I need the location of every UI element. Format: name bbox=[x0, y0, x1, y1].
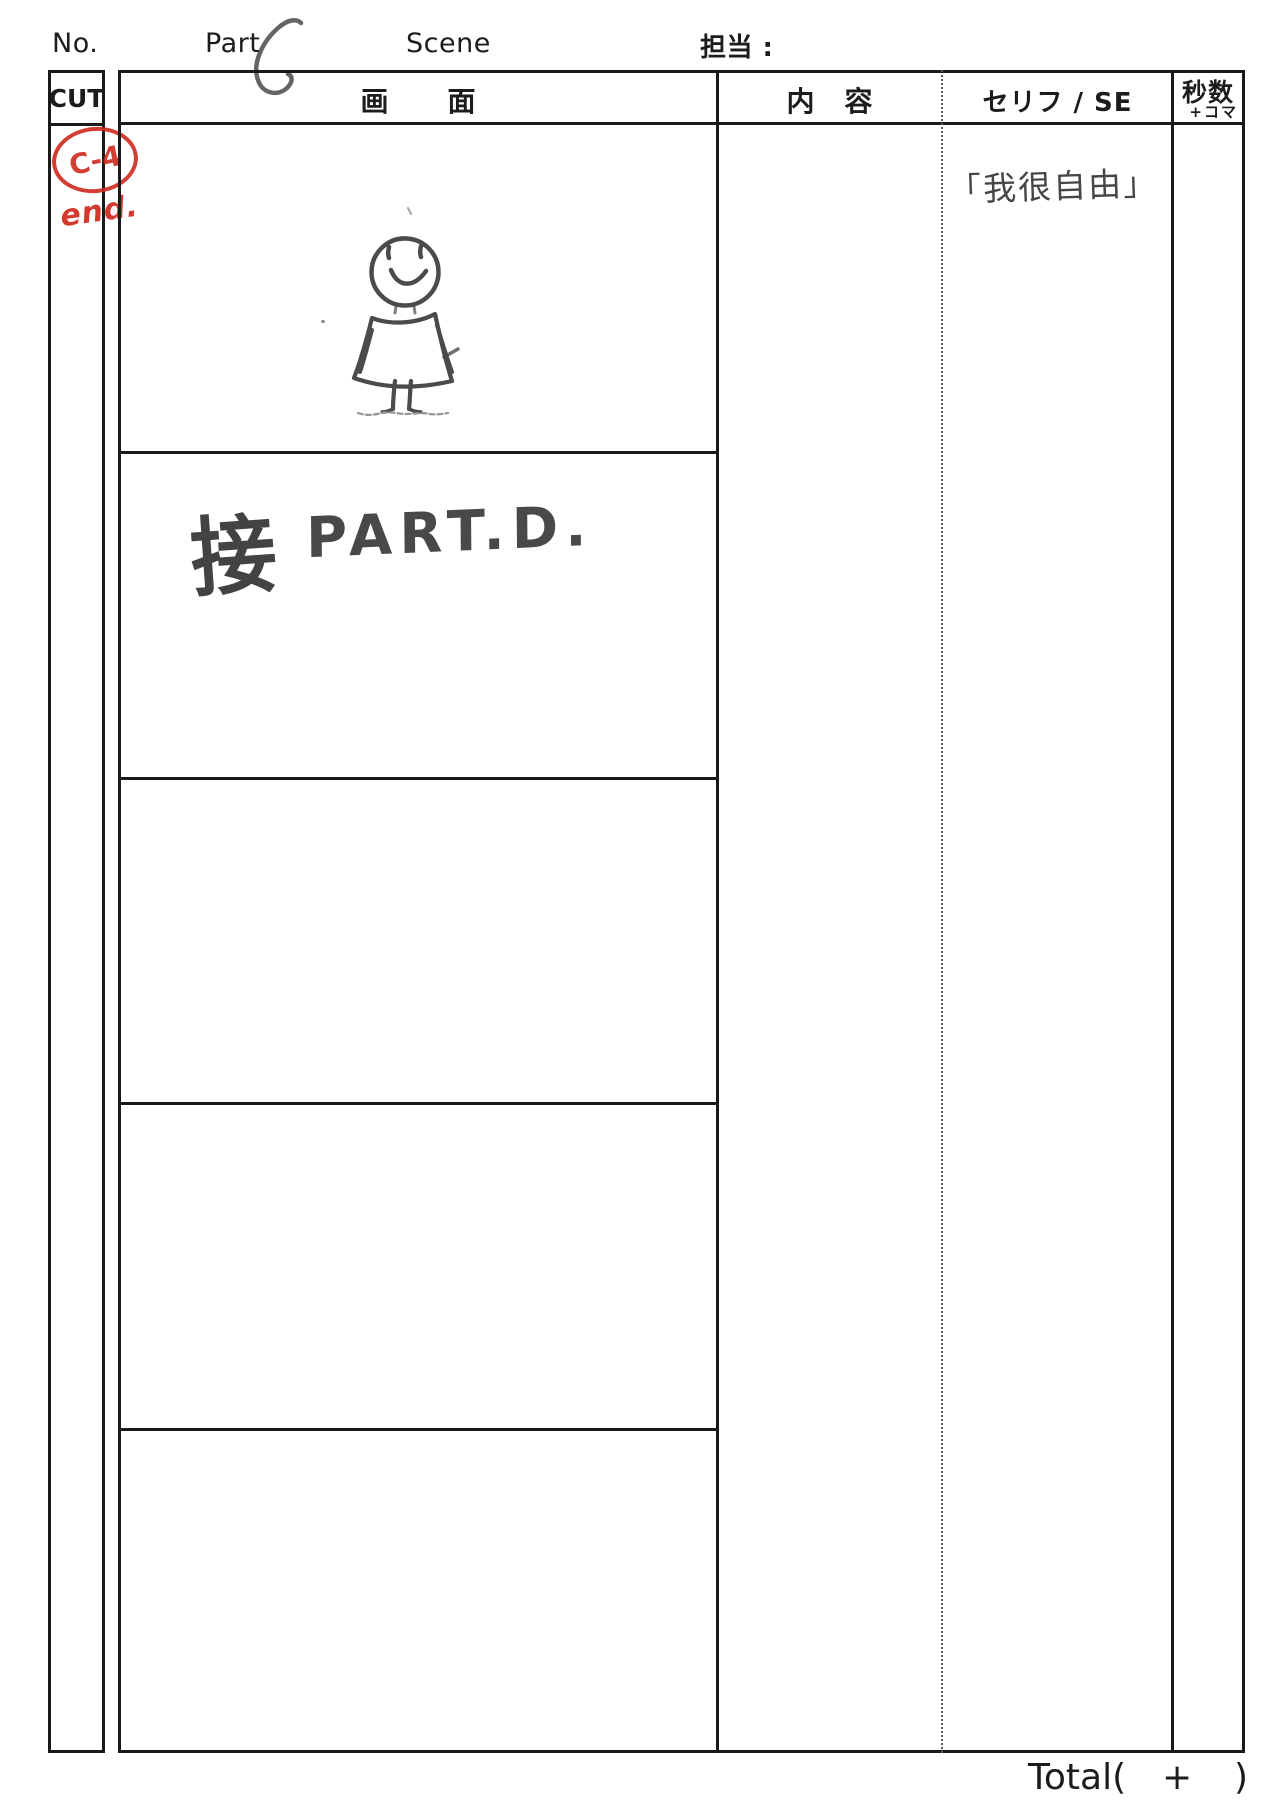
cut-column-header-cell: CUT bbox=[48, 70, 105, 126]
panel-divider bbox=[121, 1102, 716, 1105]
cut-column-body bbox=[48, 126, 105, 1753]
no-label: No. bbox=[52, 28, 98, 59]
cut-column-header-label: CUT bbox=[49, 84, 105, 113]
screen-content-divider bbox=[716, 70, 719, 1753]
panel-divider bbox=[121, 451, 716, 454]
total-label: Total( bbox=[1028, 1757, 1126, 1798]
cut-number-handwritten: C-4 bbox=[66, 138, 124, 181]
dialogue-column-header: セリフ / SE bbox=[944, 82, 1171, 119]
link-target-handwritten: PART.D. bbox=[306, 494, 594, 572]
assignee-label: 担当 : bbox=[700, 27, 773, 64]
content-dialogue-dotted-divider bbox=[941, 70, 943, 1753]
dialogue-handwritten: 「我很自由」 bbox=[947, 156, 1159, 211]
total-plus-sign: + bbox=[1162, 1757, 1192, 1798]
screen-column-header: 画 面 bbox=[121, 80, 716, 120]
link-kanji-handwritten: 接 bbox=[186, 483, 281, 614]
dialogue-seconds-divider bbox=[1171, 70, 1174, 1753]
seconds-column-subheader: +コマ bbox=[1172, 101, 1238, 122]
scene-label: Scene bbox=[406, 28, 491, 59]
panel-divider bbox=[121, 1428, 716, 1431]
storyboard-page: { "header": { "no_label": "No.", "part_l… bbox=[0, 0, 1280, 1811]
total-close-paren: ) bbox=[1234, 1757, 1248, 1798]
stick-figure-sketch-icon bbox=[316, 202, 461, 420]
content-column-header: 内 容 bbox=[719, 80, 941, 120]
panel-divider bbox=[121, 777, 716, 780]
storyboard-table bbox=[118, 70, 1245, 1753]
header-row-divider bbox=[118, 122, 1245, 125]
